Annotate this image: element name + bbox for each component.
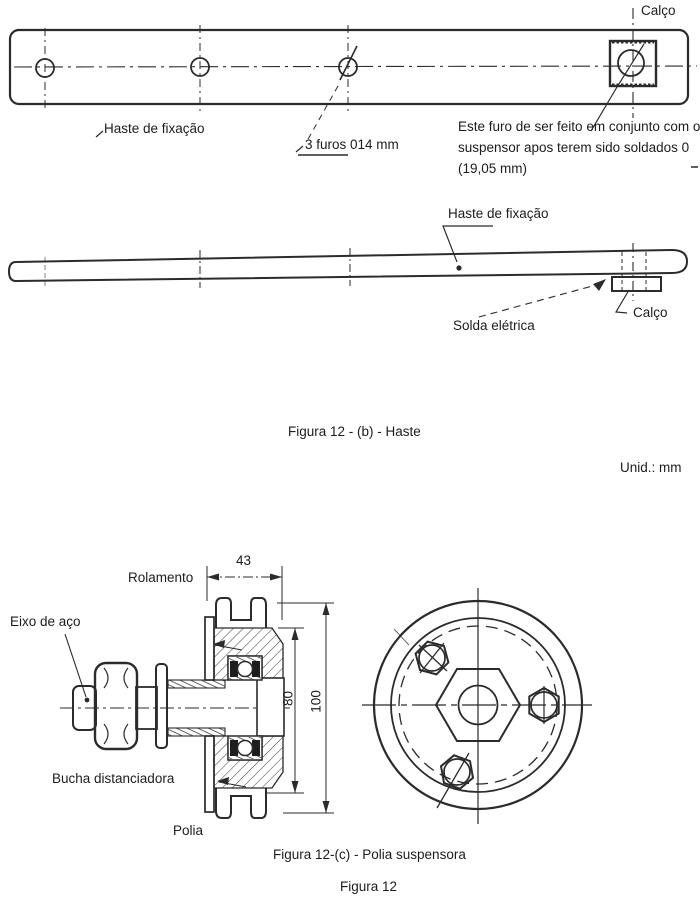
hex-nut: [95, 663, 137, 749]
caption-figure-c: Figura 12-(c) - Polia suspensora: [273, 847, 466, 864]
shaft-thread-top: [168, 680, 225, 688]
haste-side-view: [9, 226, 687, 317]
pulley-front-view: [362, 588, 592, 824]
holes-note-label: 3 furos 014 mm: [305, 137, 399, 154]
solda-label: Solda elétrica: [453, 318, 535, 335]
side-plate-bottom: [205, 736, 214, 812]
holes-note-leader: [307, 86, 338, 141]
horizontal-centerline: [14, 66, 697, 67]
side-calco-label: Calço: [633, 305, 668, 322]
groove-fork-bottom: [216, 788, 266, 818]
dim-100-label: 100: [309, 683, 326, 719]
bearing-top: [228, 656, 262, 680]
unit-note: Unid.: mm: [620, 460, 682, 477]
figura-12-page: Calço Haste de fixação 3 furos 014 mm Es…: [0, 0, 700, 899]
shaft-thread-bottom: [168, 728, 225, 736]
haste-side-leader: [443, 226, 493, 262]
weld-note-label: Este furo de ser feito em conjunto com o…: [458, 116, 700, 179]
groove-fork-top: [216, 598, 266, 628]
dim-43-label: 43: [236, 553, 251, 570]
side-plate-top: [205, 617, 214, 680]
eixo-label: Eixo de aço: [10, 614, 81, 631]
caption-figure-main: Figura 12: [340, 879, 397, 896]
haste-side-outline: [9, 250, 687, 281]
boss-bottom: [437, 753, 473, 808]
bucha-label: Bucha distanciadora: [52, 771, 174, 788]
top-haste-label: Haste de fixação: [104, 121, 205, 138]
solda-arrowhead: [593, 279, 606, 291]
calco-side: [612, 277, 661, 291]
bearing-bottom: [228, 736, 262, 760]
dimension-43: [207, 566, 282, 620]
polia-label: Polia: [173, 823, 203, 840]
calco-hole: [618, 50, 644, 76]
dim-80-label: 80: [281, 680, 298, 716]
caption-figure-b: Figura 12 - (b) - Haste: [288, 424, 421, 441]
boss-upper-left: [416, 642, 449, 675]
calco-side-leader: [616, 290, 629, 313]
top-calco-label: Calço: [641, 3, 676, 20]
solda-leader: [479, 285, 596, 317]
rolamento-label: Rolamento: [128, 570, 193, 587]
side-haste-label: Haste de fixação: [448, 206, 549, 223]
